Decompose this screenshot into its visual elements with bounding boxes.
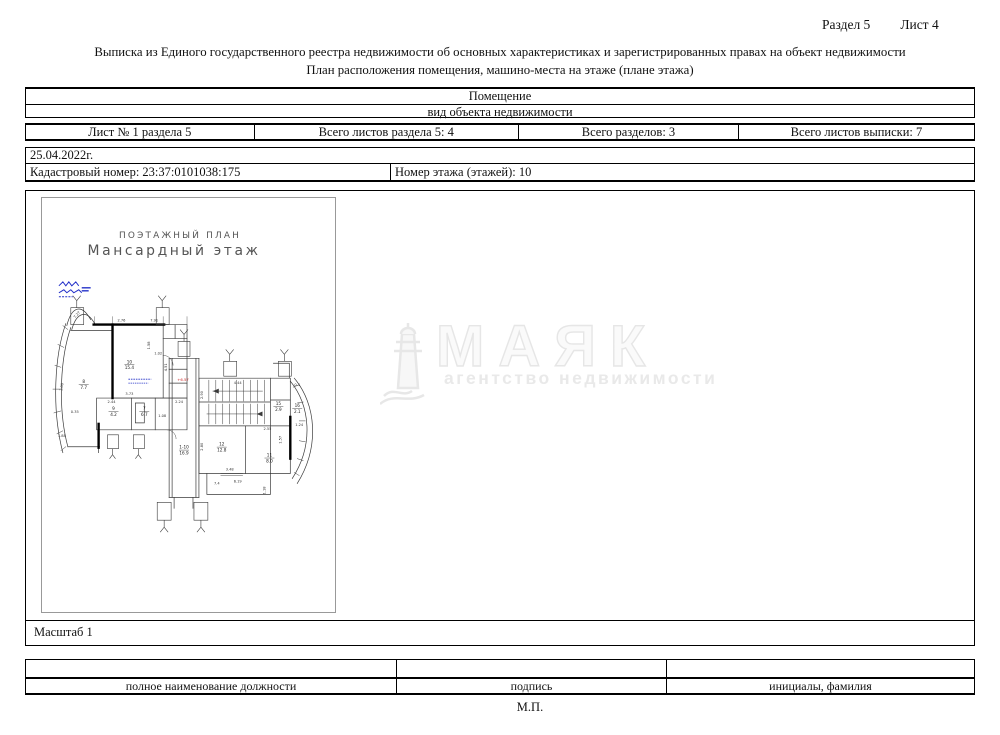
dimension-label: 2.76 bbox=[117, 319, 126, 323]
total-sections-cell: Всего разделов: 3 bbox=[518, 125, 738, 139]
cadastral-row: Кадастровый номер: 23:37:0101038:175 Ном… bbox=[25, 163, 975, 182]
signature-caption-row: полное наименование должности подпись ин… bbox=[25, 677, 975, 695]
object-type-table: Помещение вид объекта недвижимости bbox=[25, 87, 975, 118]
dimension-label: 1.88 bbox=[58, 434, 67, 438]
name-caption: инициалы, фамилия bbox=[666, 679, 974, 693]
name-input-cell bbox=[666, 660, 974, 677]
dimension-label: 3.73 bbox=[125, 392, 133, 396]
dimension-label: 4.51 bbox=[164, 363, 168, 371]
signature-input-row bbox=[25, 659, 975, 678]
signature-input-cell bbox=[396, 660, 666, 677]
room-number-label: 12 bbox=[219, 442, 225, 447]
position-caption: полное наименование должности bbox=[26, 679, 396, 693]
room-area-label: 12.8 bbox=[217, 448, 227, 453]
dimension-label: 0.35 bbox=[71, 410, 79, 414]
section-number: Раздел 5 bbox=[822, 17, 870, 32]
blue-ink-note-icon bbox=[128, 379, 151, 383]
dimension-label: 2.90 bbox=[200, 390, 204, 399]
room-area-label: 15.4 bbox=[125, 365, 135, 370]
dimension-label: 0.4 bbox=[294, 383, 300, 387]
plan-title: ПОЭТАЖНЫЙ ПЛАН bbox=[119, 229, 241, 241]
dimension-label: 1.24 bbox=[295, 423, 304, 427]
room-number-label: 15 bbox=[276, 401, 282, 406]
room-number-label: 8 bbox=[82, 379, 85, 384]
plan-floor-name: Мансардный этаж bbox=[88, 243, 261, 259]
extract-date-row: 25.04.2022г. bbox=[25, 147, 975, 164]
scale-row: Масштаб 1 bbox=[26, 620, 974, 645]
dimension-label: 2.55 bbox=[263, 427, 271, 431]
dimension-label: 7.4 bbox=[214, 481, 220, 485]
dimension-label: 2.44 bbox=[108, 400, 117, 404]
elevation-mark: +6.57 bbox=[177, 378, 189, 382]
floor-plan-drawing: ПОЭТАЖНЫЙ ПЛАН Мансардный этаж bbox=[42, 198, 335, 612]
floor-plan-sheet: ПОЭТАЖНЫЙ ПЛАН Мансардный этаж bbox=[41, 197, 336, 613]
sheet-number: Лист 4 bbox=[900, 17, 938, 32]
dimension-label: 1.57 bbox=[278, 436, 282, 444]
room-area-label: 6.7 bbox=[141, 412, 148, 417]
room-area-label: 2.9 bbox=[275, 407, 282, 412]
total-sheets-of-section-cell: Всего листов раздела 5: 4 bbox=[254, 125, 518, 139]
room-area-label: 2.1 bbox=[294, 409, 301, 414]
dimension-label: 7.27 bbox=[73, 311, 81, 320]
total-sheets-cell: Всего листов выписки: 7 bbox=[738, 125, 974, 139]
dimension-label: 1.58 bbox=[147, 341, 151, 350]
dimension-label: 2.80 bbox=[200, 442, 204, 451]
room-number-label: 7 bbox=[143, 406, 146, 411]
sheets-summary-row: Лист № 1 раздела 5 Всего листов раздела … bbox=[25, 123, 975, 141]
position-input-cell bbox=[26, 660, 396, 677]
floor-number: Номер этажа (этажей): 10 bbox=[390, 164, 974, 180]
room-area-label: 8.0 bbox=[266, 459, 273, 464]
plan-heavy-walls bbox=[94, 325, 291, 459]
plan-walls bbox=[53, 309, 313, 508]
room-area-label: 4.2 bbox=[110, 412, 117, 417]
room-number-label: 10 bbox=[127, 359, 133, 364]
dimension-label: 1.02 bbox=[154, 351, 162, 355]
room-area-label: 16.9 bbox=[179, 451, 189, 456]
document-title: Выписка из Единого государственного реес… bbox=[0, 45, 1000, 60]
room-number-label: 11 bbox=[267, 453, 273, 458]
room-number-label: 16 bbox=[295, 403, 301, 408]
dimension-label: 2.24 bbox=[175, 400, 184, 404]
room-area-label: 7.7 bbox=[80, 385, 87, 390]
room-number-label: 1-10 bbox=[179, 445, 189, 450]
object-type-caption: вид объекта недвижимости bbox=[26, 105, 974, 120]
header-section-sheet: Раздел 5Лист 4 bbox=[822, 17, 939, 33]
egrn-extract-page: Раздел 5Лист 4 Выписка из Единого госуда… bbox=[0, 0, 1000, 735]
sheet-of-section-cell: Лист № 1 раздела 5 bbox=[26, 125, 254, 139]
dimension-label: 7.91 bbox=[150, 319, 158, 323]
stamp-place-label: М.П. bbox=[395, 700, 665, 715]
signature-caption: подпись bbox=[396, 679, 666, 693]
object-type-value: Помещение bbox=[26, 89, 974, 105]
cadastral-number: Кадастровый номер: 23:37:0101038:175 bbox=[26, 164, 390, 180]
dimension-label: 1.08 bbox=[158, 414, 167, 418]
room-number-label: 9 bbox=[112, 406, 115, 411]
plan-frame: ПОЭТАЖНЫЙ ПЛАН Мансардный этаж bbox=[25, 190, 975, 646]
blue-ink-stamp-icon bbox=[59, 282, 91, 297]
dimension-label: 1.18 bbox=[262, 486, 266, 495]
document-subtitle: План расположения помещения, машино-мест… bbox=[0, 63, 1000, 78]
dimension-label: 3.00 bbox=[59, 382, 64, 391]
dimension-label: 6.19 bbox=[234, 479, 243, 483]
dimension-label: 4.44 bbox=[234, 381, 243, 385]
dimension-label: 3.48 bbox=[226, 468, 235, 472]
